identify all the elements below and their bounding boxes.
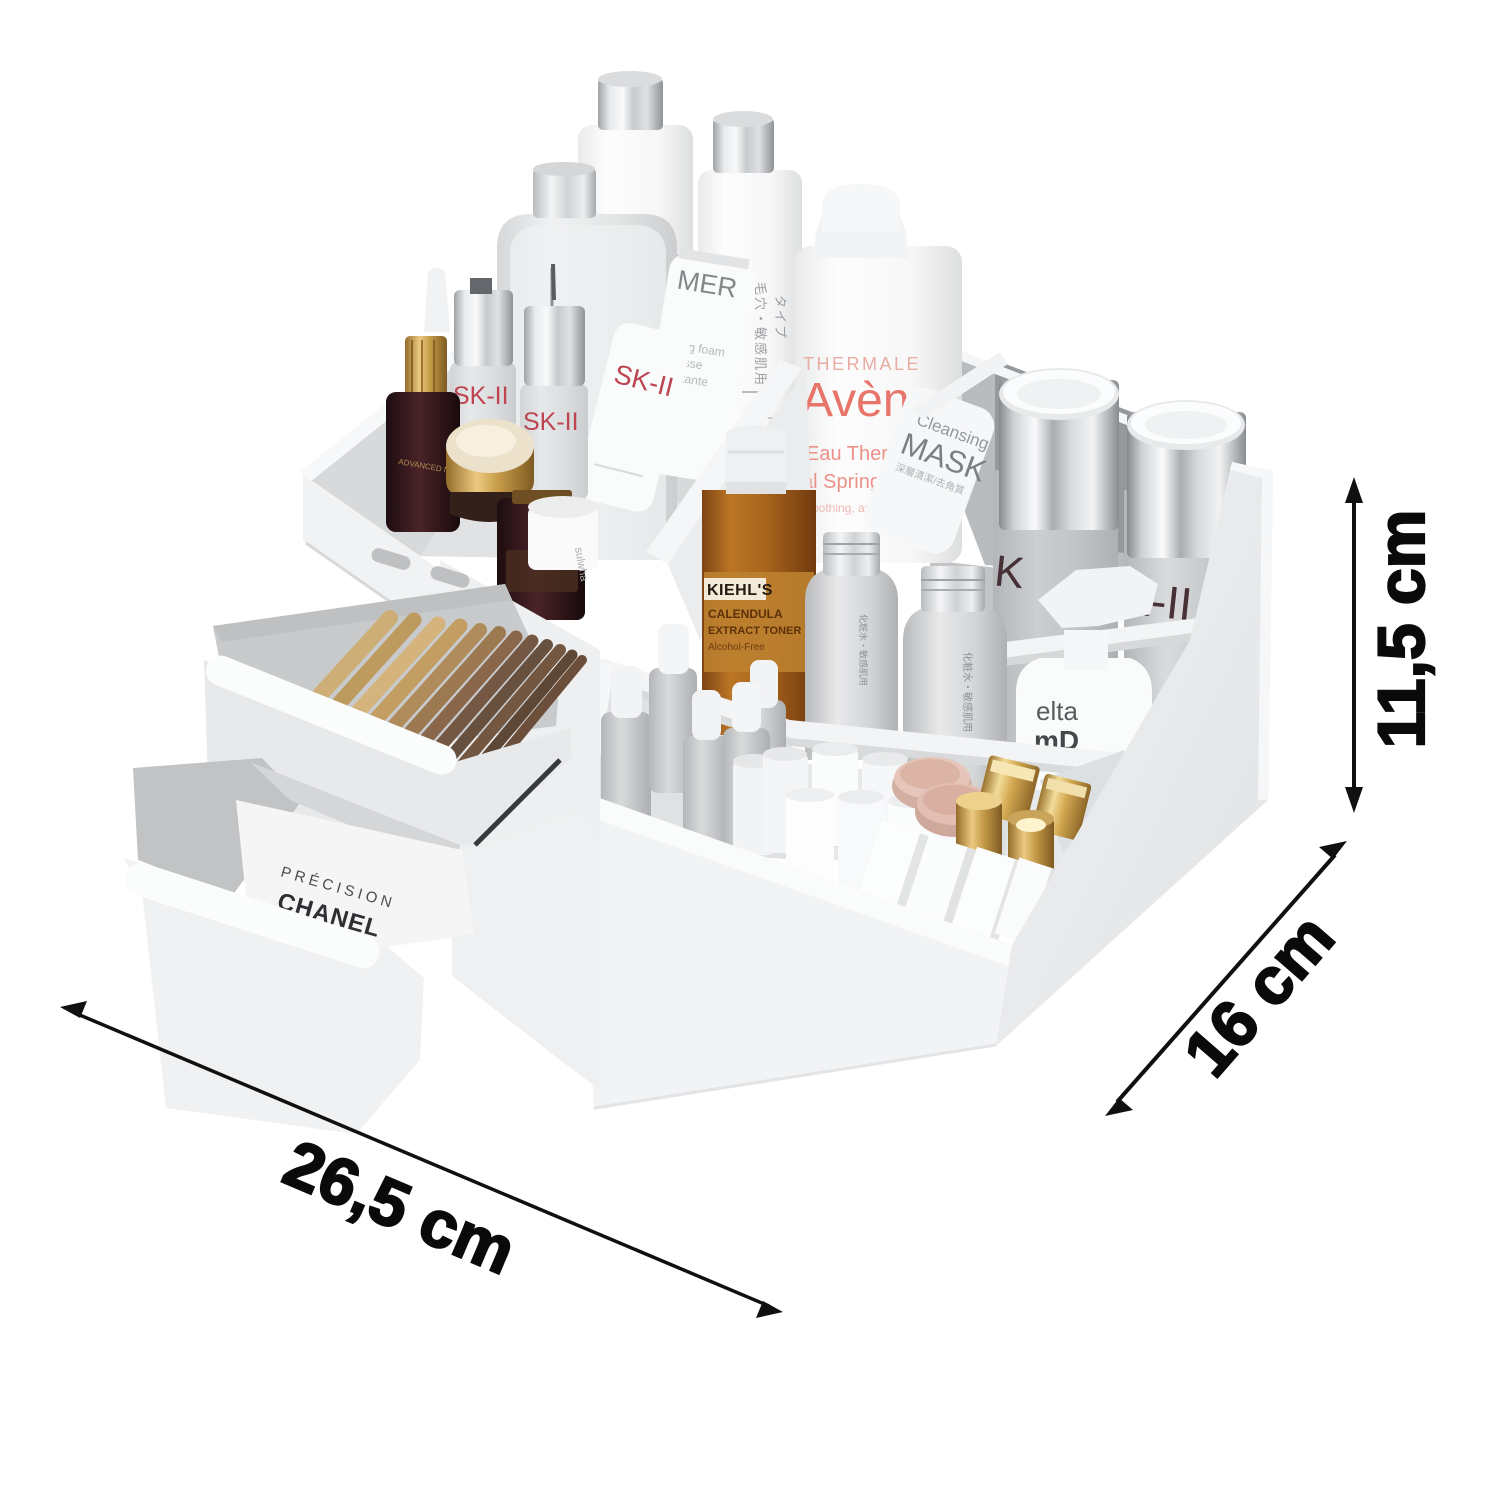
svg-text:毛穴・敏感肌用: 毛穴・敏感肌用 (753, 282, 768, 387)
svg-text:11,5 cm: 11,5 cm (1364, 510, 1438, 749)
svg-text:タイプ: タイプ (773, 295, 788, 340)
svg-text:Alcohol-Free: Alcohol-Free (708, 642, 765, 653)
svg-text:elta: elta (1036, 696, 1078, 726)
svg-text:化粧水・敏感肌用: 化粧水・敏感肌用 (961, 652, 974, 732)
svg-text:化粧水・敏感肌用: 化粧水・敏感肌用 (858, 614, 869, 686)
svg-text:SK-II: SK-II (453, 382, 509, 410)
svg-text:SK-II: SK-II (523, 408, 579, 436)
svg-text:EXTRACT TONER: EXTRACT TONER (708, 625, 801, 637)
svg-text:KIEHL'S: KIEHL'S (707, 582, 773, 599)
svg-text:K: K (992, 547, 1026, 599)
svg-text:THERMALE: THERMALE (803, 354, 921, 374)
svg-text:CALENDULA: CALENDULA (708, 607, 783, 621)
